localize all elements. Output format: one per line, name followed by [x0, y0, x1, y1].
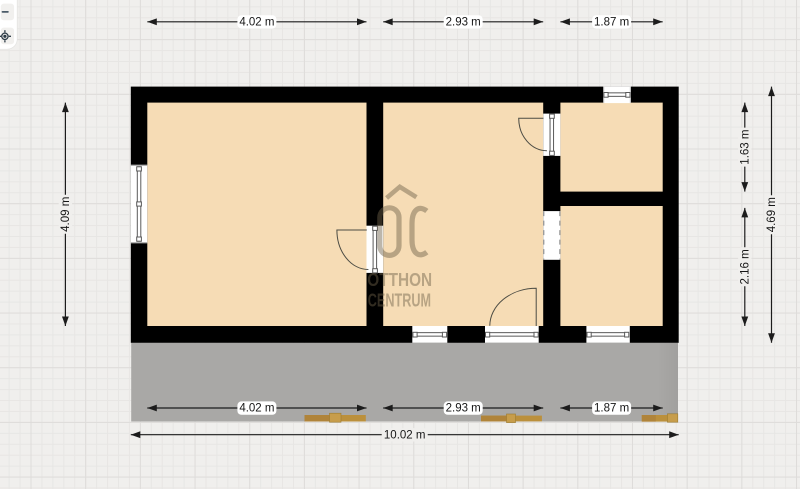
svg-text:OTTHON: OTTHON: [367, 269, 432, 290]
svg-text:2.16 m: 2.16 m: [739, 249, 751, 284]
svg-text:4.02 m: 4.02 m: [239, 403, 274, 415]
svg-text:1.63 m: 1.63 m: [739, 130, 751, 165]
svg-text:2.93 m: 2.93 m: [446, 17, 481, 29]
svg-text:4.02 m: 4.02 m: [239, 17, 274, 29]
svg-text:4.09 m: 4.09 m: [60, 197, 72, 232]
svg-text:2.93 m: 2.93 m: [446, 403, 481, 415]
svg-text:1.87 m: 1.87 m: [594, 403, 629, 415]
svg-text:CENTRUM: CENTRUM: [368, 290, 431, 311]
svg-text:4.69 m: 4.69 m: [766, 197, 778, 232]
svg-text:10.02 m: 10.02 m: [384, 429, 426, 441]
svg-text:1.87 m: 1.87 m: [594, 17, 629, 29]
